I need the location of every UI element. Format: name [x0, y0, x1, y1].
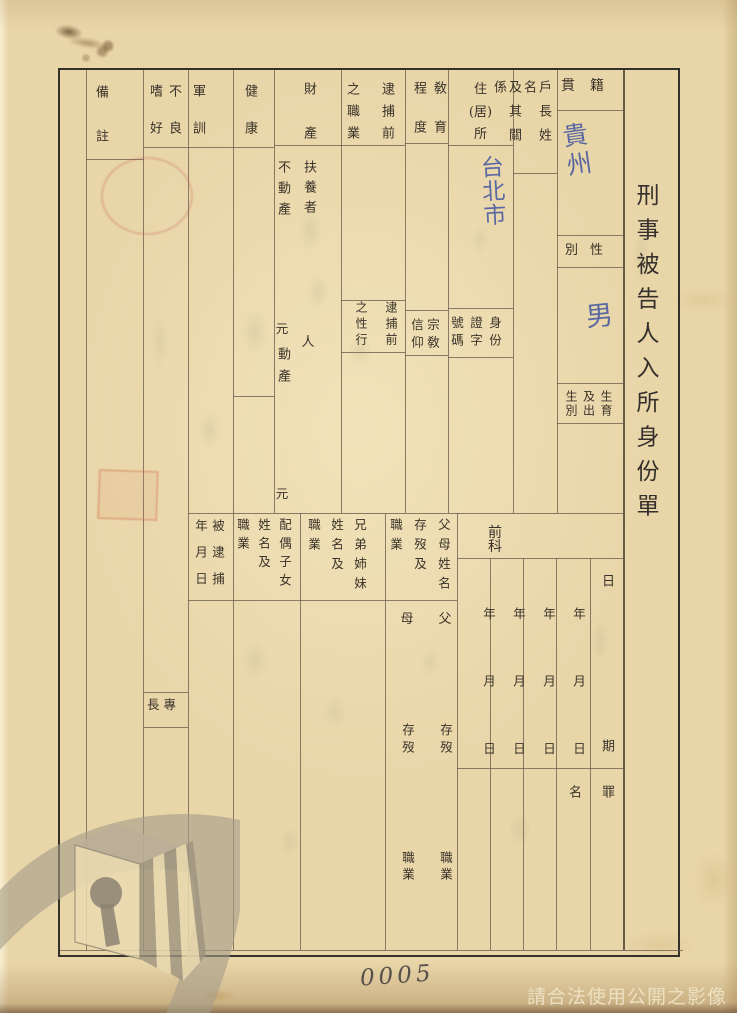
faint-square-stamp [97, 469, 159, 521]
property-label: 財產 [297, 82, 319, 170]
property-dependents-unit: 人 [300, 336, 316, 349]
grid-line [557, 383, 623, 384]
residence-value-handwriting: 台北市 [475, 154, 507, 240]
sex-value-handwriting: 男 [585, 302, 615, 332]
birth-info-label: 生育 及出 生別 [562, 390, 614, 418]
grid-line [341, 352, 405, 353]
grid-line [405, 355, 448, 356]
grid-line [405, 310, 448, 311]
scanned-form-page: 刑事被告人入所身份單 籍貫 戶長姓名 及其關係 住 (居) 所 敎育 程度 逮捕… [0, 0, 737, 1013]
paper-stain [48, 17, 115, 60]
grid-line [557, 110, 623, 111]
prior-record-date-column: 年月日 [481, 607, 496, 810]
mother-occupation-label: 職業 [399, 851, 415, 884]
grid-line [623, 70, 625, 950]
father-living-status-label: 存歿 [437, 723, 453, 758]
id-card-number-label: 身份 證字 號碼 [450, 316, 504, 351]
religion-label: 宗敎 信仰 [406, 318, 440, 353]
grid-line [385, 513, 386, 950]
grid-line [448, 357, 513, 358]
grid-line [300, 513, 301, 950]
grid-line [557, 235, 623, 236]
pre-arrest-conduct-label: 逮捕前 之性行 [347, 301, 406, 349]
usage-watermark-text: 請合法使用公開之影像 [527, 982, 727, 1009]
grid-line [557, 267, 623, 268]
criminal-record-label: 前科 [457, 526, 621, 554]
residence-label: 住 (居) 所 [448, 79, 513, 147]
grid-line [274, 70, 275, 513]
grid-line [143, 727, 188, 728]
grid-line [233, 396, 274, 397]
householder-label: 戶長姓名 及其關係 [507, 80, 551, 175]
property-movable-label: 動產 [274, 347, 290, 391]
siblings-label: 兄弟姉妹 姓名及 職業 [303, 518, 371, 596]
father-occupation-label: 職業 [437, 851, 453, 884]
sex-label: 性別 [557, 244, 623, 257]
property-currency-unit: 元 [274, 488, 290, 501]
parents-label: 父母姓名 存歿及 職業 [387, 518, 455, 596]
arrest-date-label: 被逮捕 年月日 [186, 519, 226, 599]
grid-line [448, 308, 513, 309]
bad-habits-label: 不良 嗜好 [145, 84, 183, 158]
grid-line [188, 513, 623, 514]
specialty-label: 專長 [141, 699, 186, 712]
grid-line [188, 600, 457, 601]
spouse-children-label: 配偶子女 姓名及 職業 [233, 518, 295, 592]
grid-line [143, 692, 188, 693]
prior-record-date-column: 年月日 [541, 607, 556, 810]
grid-line [457, 558, 623, 559]
pre-arrest-occupation-label: 逮捕前 之職業 [341, 82, 404, 148]
prior-record-date-column: 年月日 [571, 607, 586, 810]
form-title: 刑事被告人入所身份單 [629, 183, 661, 538]
grid-line [457, 513, 458, 950]
prior-record-date-column: 年月日 [511, 607, 526, 810]
father-label: 父 [437, 613, 453, 626]
property-dependents-label: 扶養者 [300, 160, 316, 220]
grid-line [557, 423, 623, 424]
military-training-label: 軍訓 [186, 84, 208, 158]
property-currency-unit: 元 [274, 323, 290, 336]
education-label: 敎育 程度 [404, 81, 448, 159]
archive-watermark-logo [0, 792, 240, 1013]
criminal-record-crime-label: 罪名 [590, 785, 623, 1013]
remarks-label: 備註 [89, 85, 111, 173]
mother-label: 母 [399, 613, 415, 626]
mother-living-status-label: 存歿 [399, 723, 415, 758]
faint-round-stamp [101, 157, 193, 235]
property-real-estate-label: 不動產 [274, 160, 290, 223]
native-place-label: 籍貫 [557, 79, 623, 93]
health-label: 健康 [238, 84, 260, 158]
page-number-handwriting: 0005 [359, 960, 435, 991]
